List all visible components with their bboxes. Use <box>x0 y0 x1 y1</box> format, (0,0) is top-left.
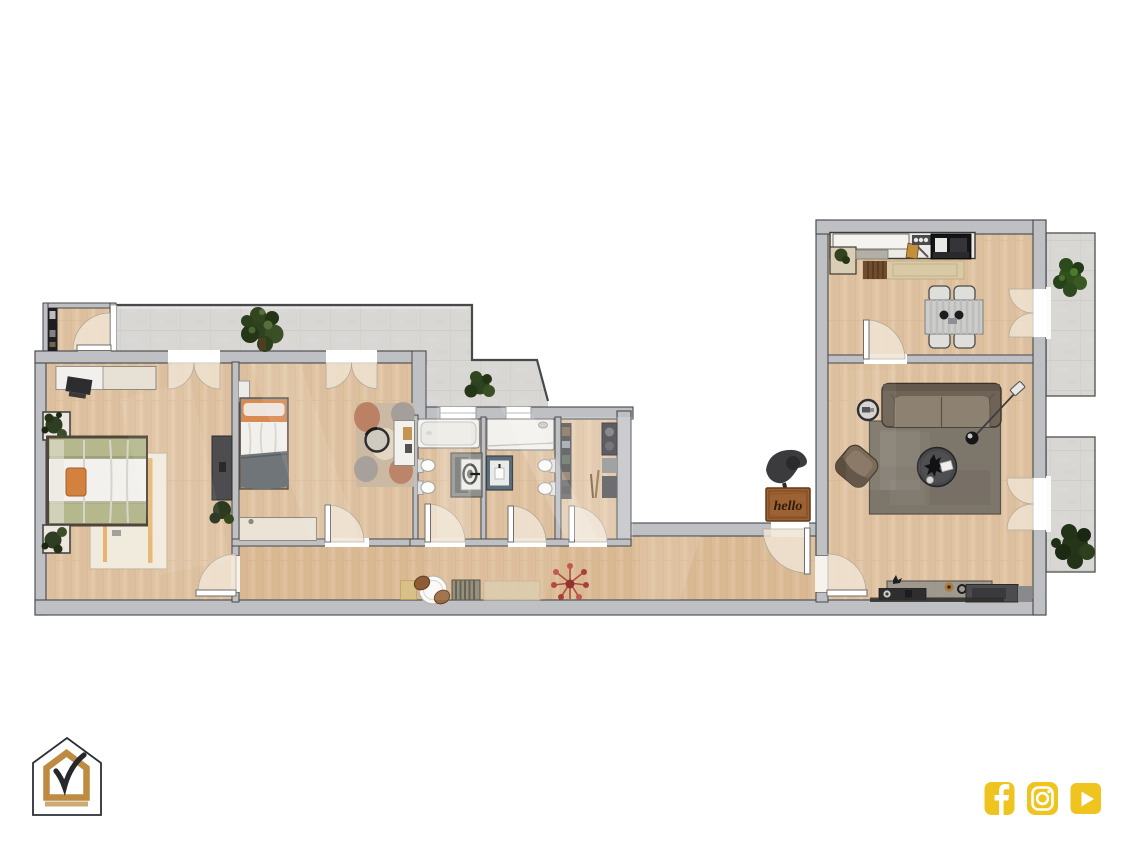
svg-text:hello: hello <box>774 499 803 514</box>
